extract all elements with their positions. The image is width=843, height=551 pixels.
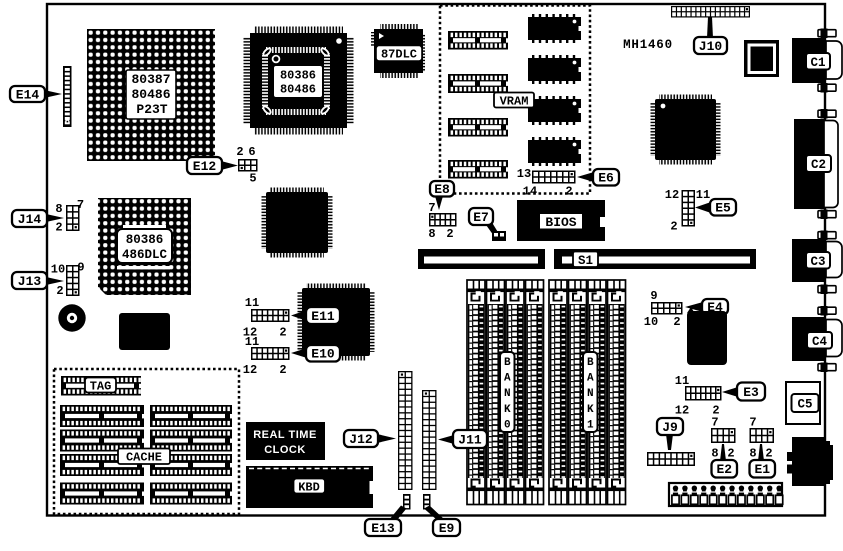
- svg-text:80387: 80387: [131, 72, 170, 87]
- svg-text:E12: E12: [193, 159, 217, 174]
- svg-text:6: 6: [248, 145, 255, 159]
- svg-text:E5: E5: [715, 201, 731, 216]
- svg-text:2: 2: [279, 363, 286, 377]
- svg-text:J10: J10: [699, 39, 723, 54]
- svg-text:10: 10: [51, 263, 65, 277]
- svg-text:87DLC: 87DLC: [381, 48, 417, 62]
- svg-text:2: 2: [565, 185, 572, 199]
- svg-text:12: 12: [665, 188, 679, 202]
- svg-text:KBD: KBD: [298, 481, 320, 495]
- svg-text:7: 7: [77, 198, 84, 212]
- svg-text:C5: C5: [797, 398, 812, 412]
- svg-text:2: 2: [670, 220, 677, 234]
- svg-text:2: 2: [727, 447, 734, 461]
- svg-text:CLOCK: CLOCK: [264, 444, 306, 456]
- svg-text:E9: E9: [439, 521, 455, 536]
- svg-text:S1: S1: [578, 254, 593, 268]
- svg-text:C3: C3: [810, 255, 825, 269]
- svg-text:BIOS: BIOS: [545, 215, 576, 230]
- svg-text:486DLC: 486DLC: [122, 248, 168, 262]
- svg-text:9: 9: [77, 261, 84, 275]
- svg-text:2: 2: [279, 326, 286, 340]
- svg-text:80486: 80486: [131, 87, 170, 102]
- svg-text:8: 8: [55, 202, 62, 216]
- svg-text:K: K: [587, 404, 594, 416]
- svg-text:E1: E1: [754, 462, 770, 477]
- svg-text:11: 11: [696, 188, 710, 202]
- svg-text:80486: 80486: [280, 83, 316, 97]
- svg-text:A: A: [504, 373, 511, 385]
- svg-text:P23T: P23T: [136, 102, 167, 117]
- svg-text:REAL TIME: REAL TIME: [253, 429, 317, 441]
- svg-text:E13: E13: [371, 521, 395, 536]
- svg-text:C1: C1: [810, 56, 825, 70]
- svg-text:2: 2: [55, 221, 62, 235]
- svg-text:E6: E6: [598, 171, 614, 186]
- svg-text:11: 11: [245, 296, 259, 310]
- svg-text:N: N: [587, 388, 594, 400]
- svg-text:2: 2: [765, 447, 772, 461]
- svg-text:11: 11: [245, 335, 259, 349]
- svg-text:8: 8: [428, 227, 435, 241]
- svg-text:2: 2: [446, 227, 453, 241]
- svg-text:E7: E7: [473, 210, 489, 225]
- svg-text:8: 8: [711, 447, 718, 461]
- svg-text:A: A: [587, 373, 594, 385]
- svg-text:1: 1: [587, 419, 594, 431]
- svg-text:5: 5: [249, 172, 256, 186]
- svg-text:2: 2: [236, 145, 243, 159]
- svg-text:K: K: [504, 404, 511, 416]
- svg-text:VRAM: VRAM: [500, 95, 529, 109]
- svg-text:E3: E3: [743, 385, 759, 400]
- svg-text:0: 0: [504, 419, 511, 431]
- svg-text:N: N: [504, 388, 511, 400]
- svg-text:9: 9: [650, 289, 657, 303]
- svg-text:12: 12: [675, 404, 689, 418]
- svg-text:J14: J14: [18, 212, 42, 227]
- svg-text:7: 7: [428, 201, 435, 215]
- svg-text:12: 12: [243, 363, 257, 377]
- svg-text:J9: J9: [662, 420, 678, 435]
- svg-text:80386: 80386: [280, 69, 316, 83]
- svg-text:E8: E8: [434, 182, 450, 197]
- svg-text:J13: J13: [18, 274, 42, 289]
- svg-text:13: 13: [517, 167, 531, 181]
- svg-text:7: 7: [711, 416, 718, 430]
- svg-text:TAG: TAG: [90, 380, 112, 394]
- svg-text:7: 7: [749, 416, 756, 430]
- svg-text:E11: E11: [311, 309, 335, 324]
- svg-text:C4: C4: [812, 335, 828, 349]
- svg-text:J11: J11: [458, 432, 482, 447]
- svg-text:CACHE: CACHE: [126, 451, 162, 465]
- svg-text:80386: 80386: [126, 233, 164, 247]
- svg-text:2: 2: [56, 284, 63, 298]
- svg-text:8: 8: [749, 447, 756, 461]
- svg-text:2: 2: [673, 315, 680, 329]
- svg-text:MH1460: MH1460: [623, 38, 673, 52]
- svg-text:14: 14: [523, 185, 537, 199]
- svg-text:B: B: [587, 357, 594, 369]
- svg-text:E10: E10: [311, 347, 335, 362]
- svg-text:11: 11: [675, 374, 689, 388]
- svg-text:B: B: [504, 357, 511, 369]
- svg-text:E14: E14: [16, 87, 40, 102]
- svg-text:C2: C2: [811, 158, 826, 172]
- svg-text:E2: E2: [716, 462, 732, 477]
- svg-text:10: 10: [644, 315, 658, 329]
- svg-text:J12: J12: [349, 432, 373, 447]
